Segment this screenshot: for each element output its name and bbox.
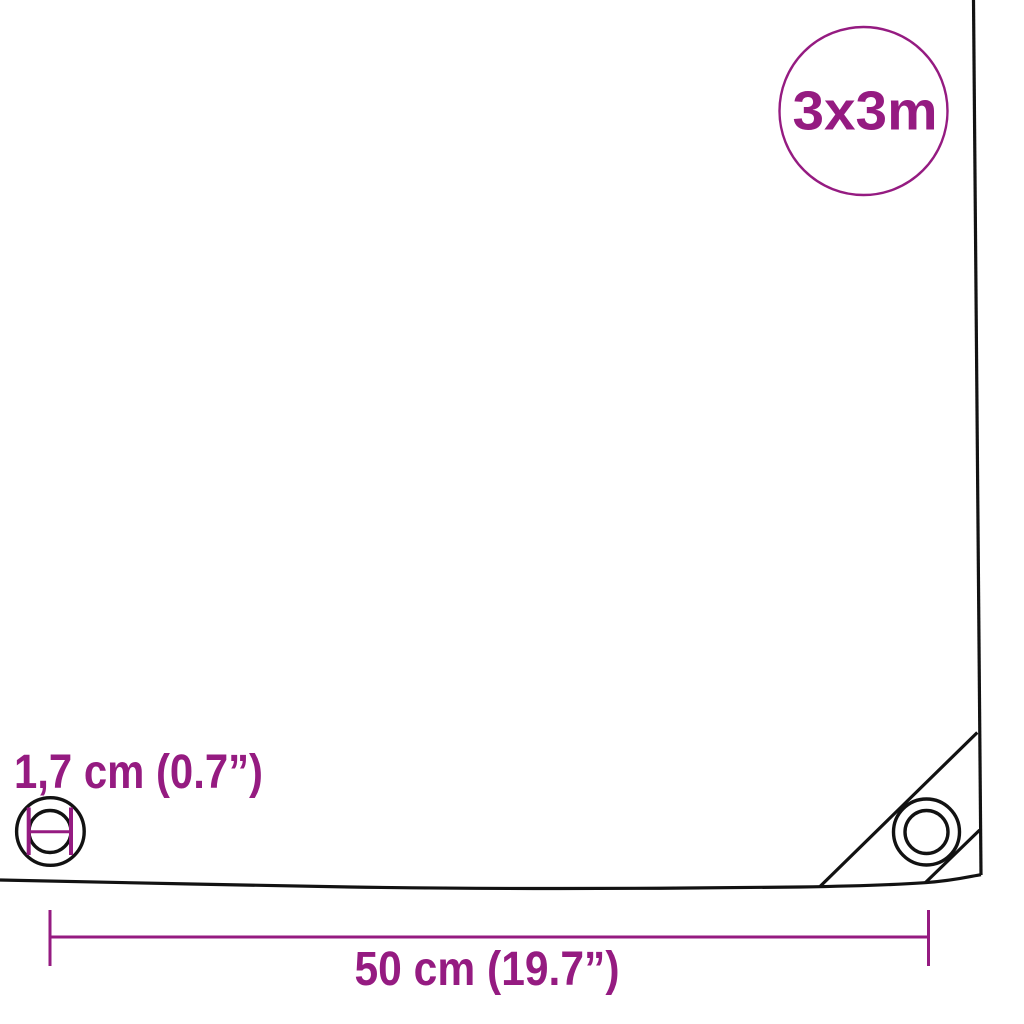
svg-text:1,7 cm (0.7”): 1,7 cm (0.7”): [14, 746, 263, 799]
svg-text:50 cm (19.7”): 50 cm (19.7”): [355, 943, 620, 996]
svg-text:3x3m: 3x3m: [793, 80, 938, 142]
